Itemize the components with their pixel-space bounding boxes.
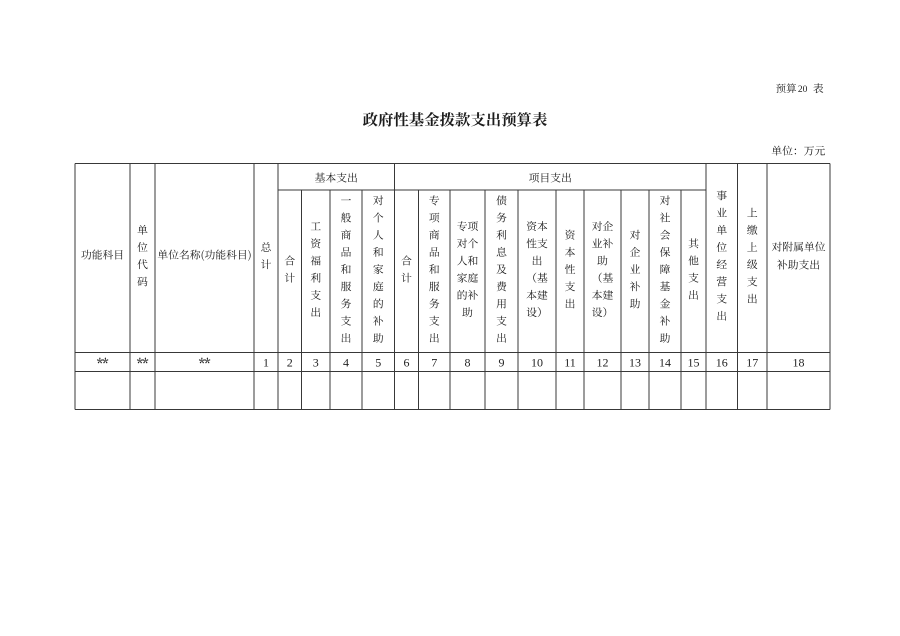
svg-text:20: 20 bbox=[798, 85, 808, 95]
svg-text:15: 15 bbox=[688, 355, 700, 369]
svg-text:16: 16 bbox=[716, 355, 728, 369]
svg-text:18: 18 bbox=[793, 355, 805, 369]
svg-text:2: 2 bbox=[287, 355, 293, 369]
svg-text:6: 6 bbox=[404, 355, 410, 369]
svg-text:10: 10 bbox=[531, 355, 543, 369]
svg-text:17: 17 bbox=[746, 355, 758, 369]
svg-text:7: 7 bbox=[431, 355, 437, 369]
svg-text:12: 12 bbox=[597, 355, 609, 369]
svg-text:14: 14 bbox=[659, 355, 671, 369]
svg-text:9: 9 bbox=[499, 355, 505, 369]
svg-text:4: 4 bbox=[343, 355, 349, 369]
svg-text:8: 8 bbox=[465, 355, 471, 369]
svg-text:5: 5 bbox=[375, 355, 381, 369]
svg-text:11: 11 bbox=[564, 355, 576, 369]
svg-text:1: 1 bbox=[263, 355, 269, 369]
svg-text:3: 3 bbox=[313, 355, 319, 369]
svg-text:13: 13 bbox=[629, 355, 641, 369]
